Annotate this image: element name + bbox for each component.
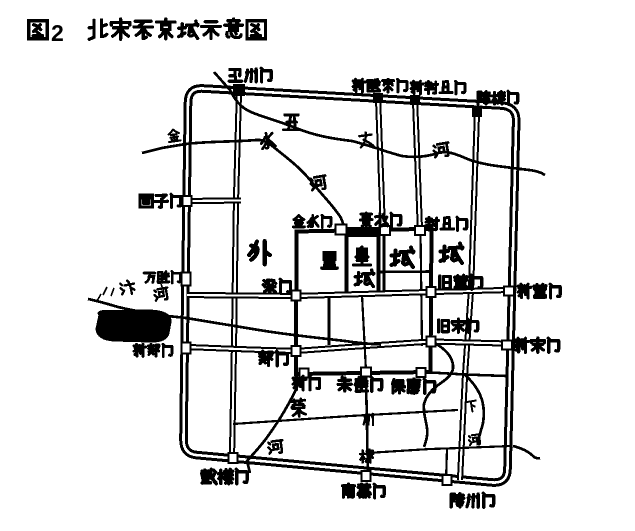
svg-text:2: 2: [51, 20, 64, 46]
